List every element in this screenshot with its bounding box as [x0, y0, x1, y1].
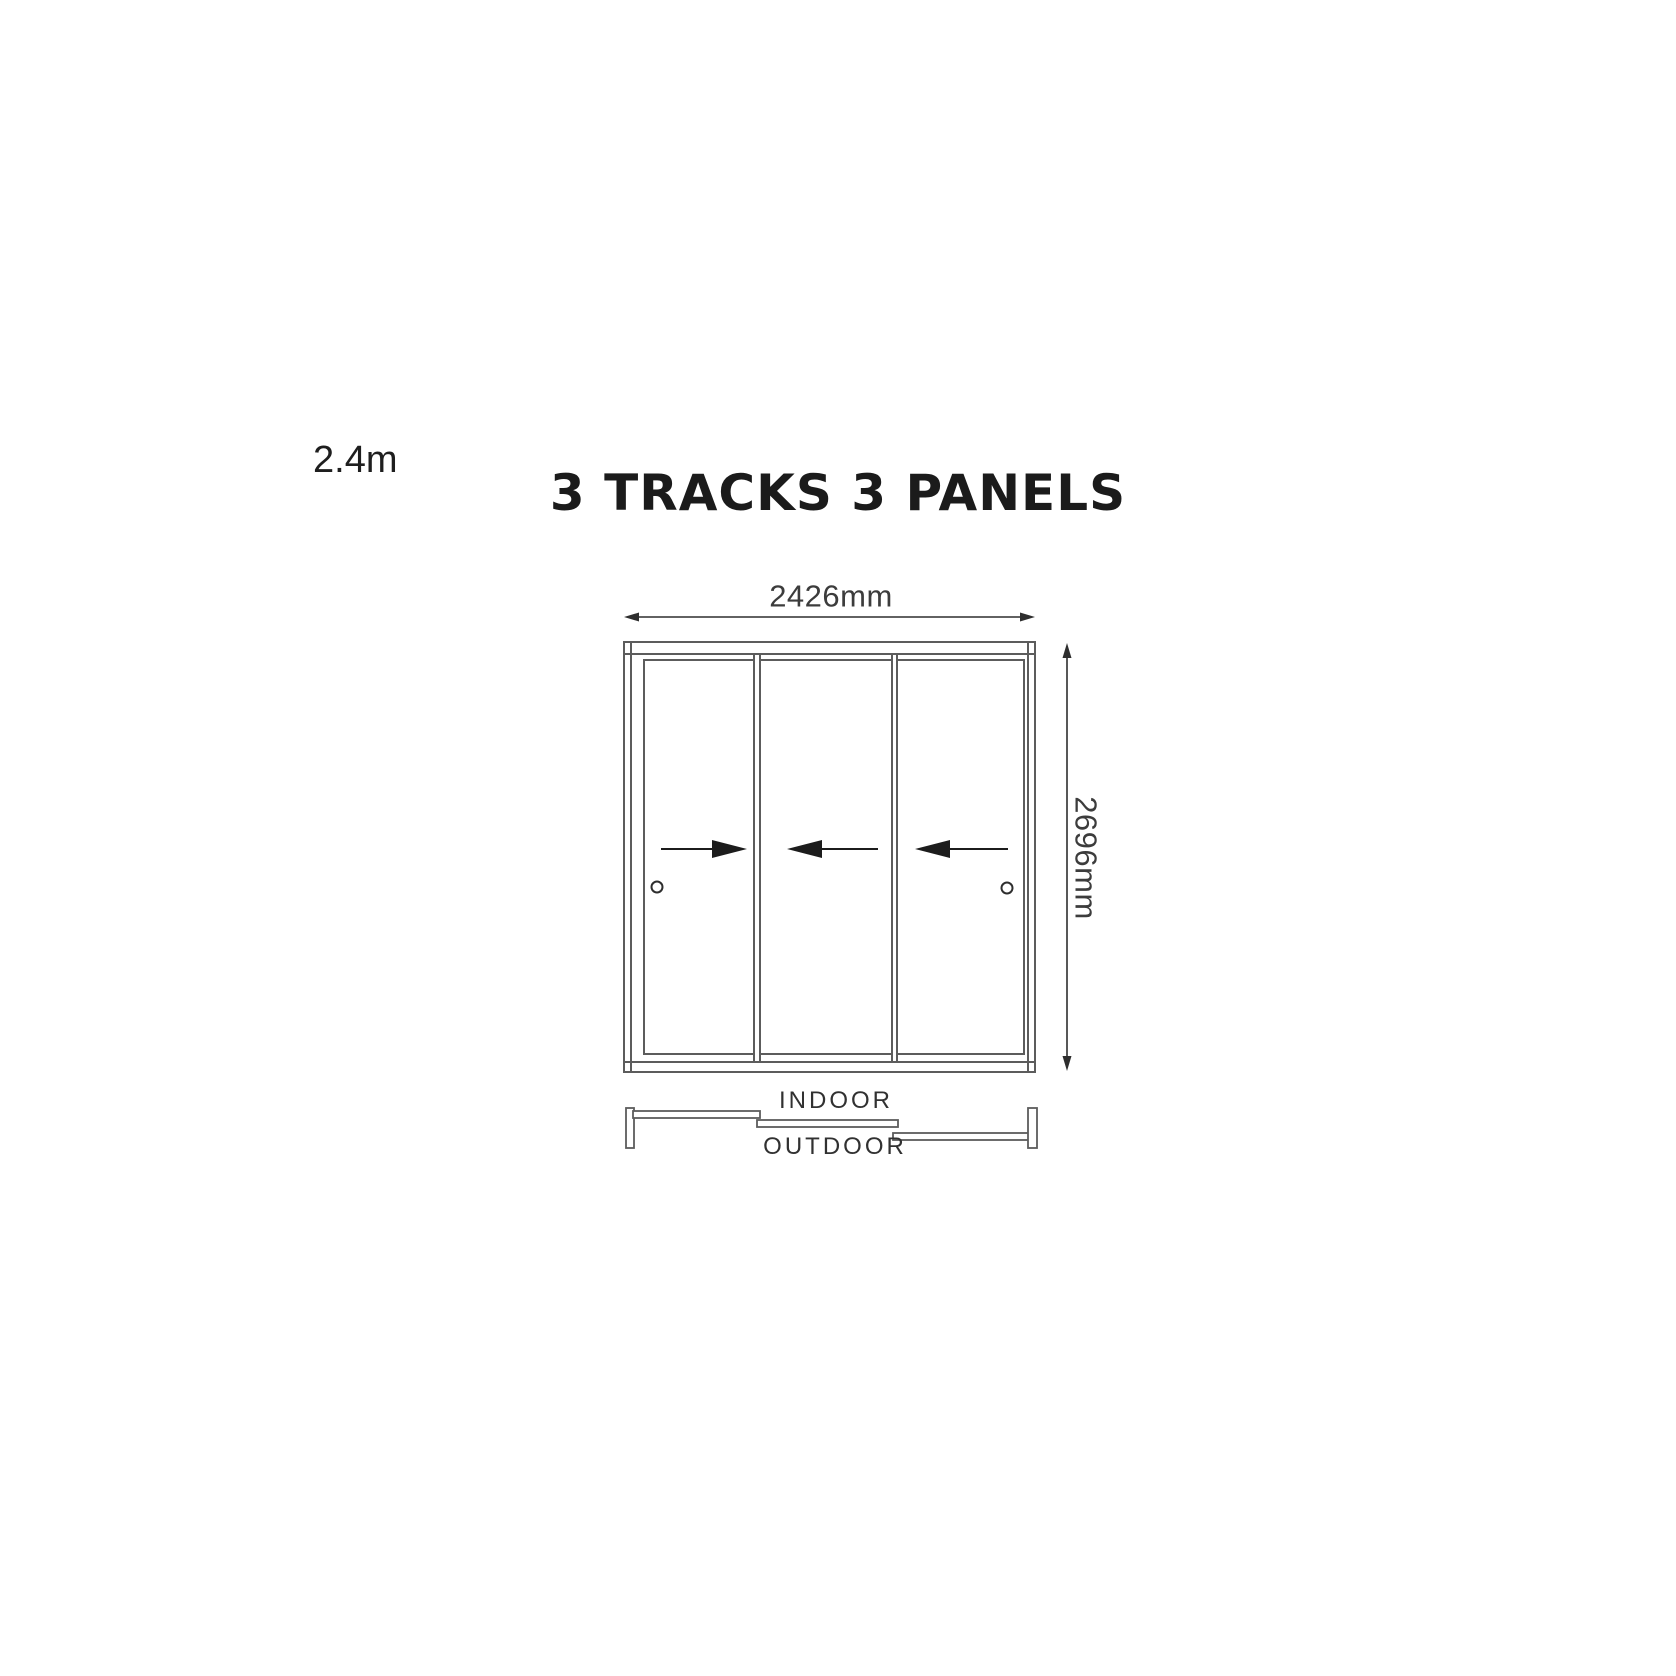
indoor-label: INDOOR	[779, 1089, 893, 1113]
width-dimension-label: 2426mm	[769, 581, 893, 612]
page-title: 3 TRACKS 3 PANELS	[550, 468, 1126, 518]
slide-direction-arrows	[661, 840, 1008, 858]
diagram-page: 2.4m 3 TRACKS 3 PANELS 2426mm 2696mm IND…	[0, 0, 1676, 1676]
panel-3-rect	[897, 660, 1024, 1054]
width-dimension	[624, 613, 1035, 622]
door-handles	[652, 882, 1013, 894]
plan-right-jamb-rect	[1028, 1108, 1037, 1148]
size-label: 2.4m	[313, 441, 397, 479]
panel-3-handle-icon	[1002, 883, 1013, 894]
height-dim-bottom-arrow-icon	[1063, 1056, 1072, 1071]
height-dim-top-arrow-icon	[1063, 643, 1072, 658]
panel-1-handle-icon	[652, 882, 663, 893]
height-dimension-label: 2696mm	[1071, 796, 1102, 920]
outdoor-label: OUTDOOR	[763, 1135, 907, 1159]
width-dim-left-arrow-icon	[624, 613, 639, 622]
panel-2-rect	[760, 660, 892, 1054]
panel-3-left-arrow-icon	[915, 840, 950, 858]
width-dim-right-arrow-icon	[1020, 613, 1035, 622]
panel-2-left-arrow-icon	[787, 840, 822, 858]
plan-track-2-panel-rect	[757, 1120, 898, 1127]
panel-1-rect	[644, 660, 754, 1054]
door-frame	[624, 642, 1035, 1072]
panel-1-right-arrow-icon	[712, 840, 747, 858]
plan-track-3-panel-rect	[893, 1133, 1030, 1140]
door-panels	[644, 660, 1024, 1054]
plan-track-1-panel-rect	[633, 1111, 760, 1118]
door-drawing	[0, 0, 1676, 1676]
frame-outer-rect	[624, 642, 1035, 1072]
